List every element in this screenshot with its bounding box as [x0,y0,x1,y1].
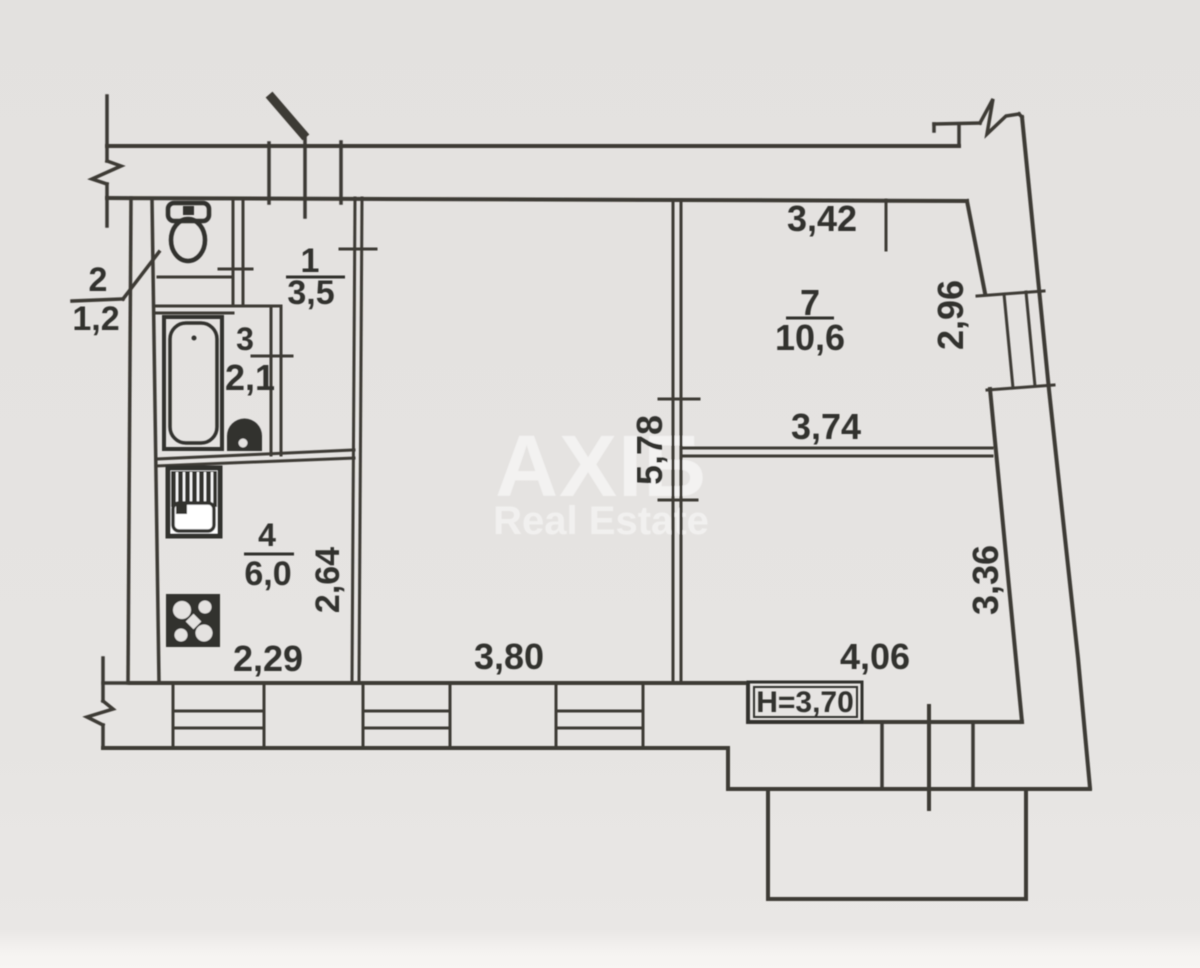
svg-text:3,80: 3,80 [474,636,544,677]
svg-text:3,5: 3,5 [287,274,334,312]
svg-text:H=3,70: H=3,70 [756,686,854,719]
svg-text:2,64: 2,64 [309,547,347,613]
svg-text:6,0: 6,0 [244,555,291,593]
svg-text:4,06: 4,06 [840,636,910,677]
svg-text:3,74: 3,74 [791,406,861,447]
svg-text:3: 3 [236,321,254,357]
svg-text:2,96: 2,96 [930,280,971,350]
svg-text:Real Estate: Real Estate [493,499,709,543]
svg-text:10,6: 10,6 [775,317,845,358]
svg-text:1,2: 1,2 [72,300,119,338]
svg-text:2,1: 2,1 [225,357,275,398]
svg-text:5,78: 5,78 [629,415,670,485]
svg-text:3,36: 3,36 [965,545,1006,615]
svg-text:2,29: 2,29 [233,638,303,679]
svg-text:3,42: 3,42 [787,198,857,239]
svg-text:2: 2 [89,261,108,299]
svg-text:4: 4 [258,517,276,553]
